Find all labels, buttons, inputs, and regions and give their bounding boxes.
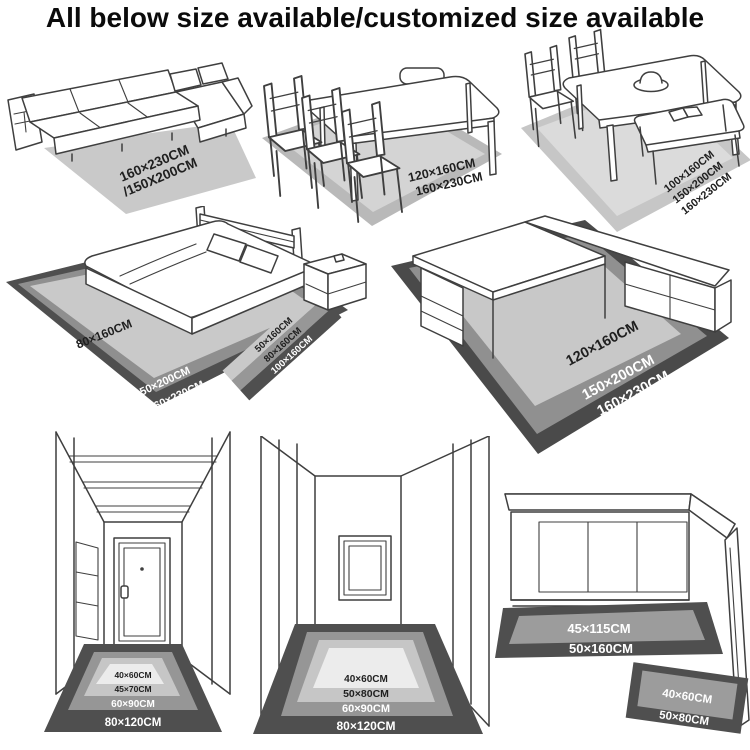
- desk-scene: 120×160CM 150×200CM 160×230CM: [385, 196, 750, 458]
- size-label: 40×60CM: [114, 670, 151, 680]
- hallway-window-scene: 40×60CM 50×80CM 60×90CM 80×120CM: [253, 436, 497, 742]
- hallway-door-mats: 40×60CM 45×70CM 60×90CM 80×120CM: [44, 644, 222, 732]
- size-label: 50×80CM: [343, 688, 389, 700]
- bedroom-scene: 50×160CM 80×160CM 100×160CM 80×160CM 150…: [0, 206, 390, 454]
- hallway-window-mats: 40×60CM 50×80CM 60×90CM 80×120CM: [253, 624, 483, 734]
- kitchen-scene: 45×115CM 50×160CM 40×60CM 50×80CM: [495, 436, 750, 742]
- rug-size-infographic: All below size available/customized size…: [0, 0, 750, 750]
- kitchen-corner-mat: 40×60CM 50×80CM: [626, 662, 749, 734]
- size-label: 80×120CM: [336, 719, 395, 733]
- size-label: 45×70CM: [114, 684, 151, 694]
- size-label: 50×160CM: [569, 641, 633, 656]
- living-room-scene: 160×230CM /150X200CM: [0, 36, 258, 218]
- kitchen-runner-mat: 45×115CM 50×160CM: [495, 602, 723, 658]
- size-label: 45×115CM: [567, 621, 630, 636]
- size-label: 60×90CM: [342, 703, 390, 715]
- size-label: 40×60CM: [344, 674, 388, 685]
- size-label: 60×90CM: [111, 699, 155, 710]
- size-label: 80×120CM: [105, 717, 162, 729]
- hallway-door-scene: 40×60CM 45×70CM 60×90CM 80×120CM: [20, 426, 264, 746]
